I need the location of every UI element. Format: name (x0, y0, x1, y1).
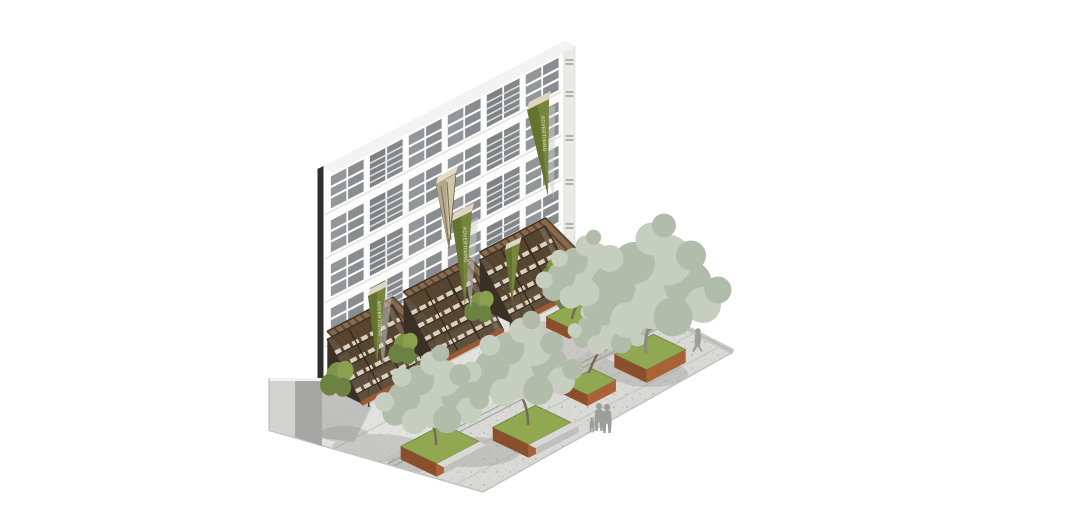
facade-side-slab (564, 41, 575, 270)
return-wall (269, 378, 322, 446)
rendering-canvas: ADVERTISING ADVERTISING ADVERTISING (0, 0, 1080, 529)
section-cut-edge (318, 166, 324, 393)
